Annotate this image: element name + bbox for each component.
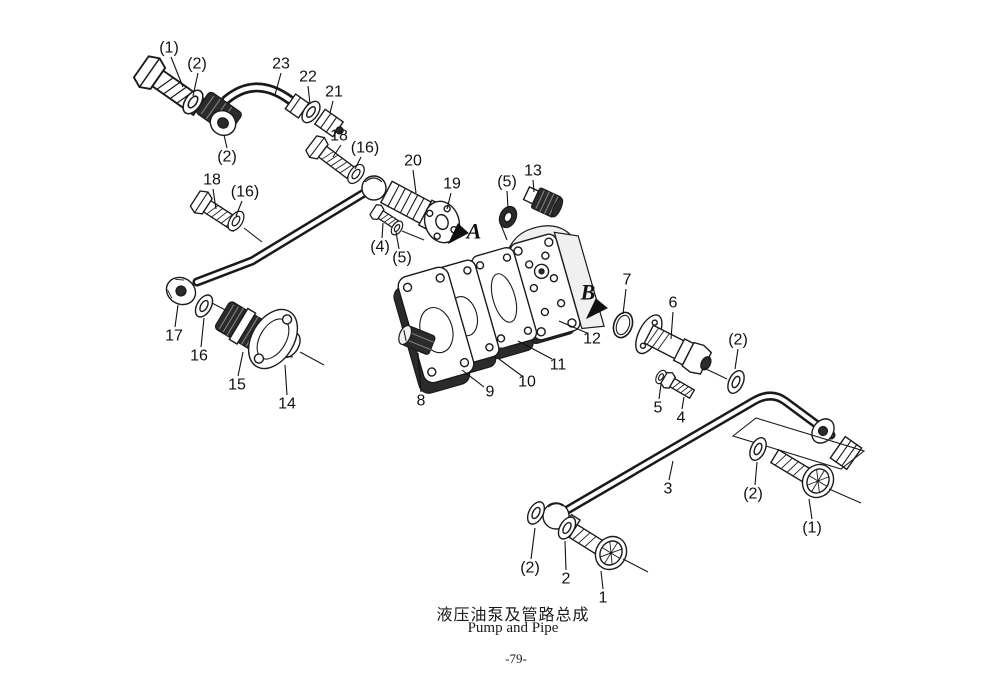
- diagram-title-english: Pump and Pipe: [468, 620, 559, 637]
- callout-label-27: (2): [743, 486, 763, 503]
- callout-label-34: 15: [228, 377, 246, 394]
- callout-leader-28: [809, 499, 812, 519]
- callout-label-1: (2): [187, 56, 207, 73]
- callout-label-2: 23: [272, 56, 290, 73]
- view-label-A: A: [465, 219, 482, 244]
- callout-label-15: 13: [524, 163, 542, 180]
- parts-diagram-canvas: (1)(2)23222118(16)(2)18(16)2019(4)(5)(5)…: [0, 0, 984, 689]
- callout-label-32: 17: [165, 328, 183, 345]
- banjo-17: [161, 272, 200, 310]
- bolt-pointer-line: [829, 489, 861, 503]
- callout-label-13: (5): [392, 250, 412, 267]
- callout-label-6: (16): [351, 140, 379, 157]
- washer-2-plane: [747, 435, 770, 463]
- callout-leader-7: [224, 135, 227, 148]
- callout-leader-33: [201, 318, 204, 347]
- callout-label-8: 18: [203, 172, 221, 189]
- callout-label-9: (16): [231, 184, 259, 201]
- callout-label-29: (2): [520, 560, 540, 577]
- callout-leader-27: [755, 462, 757, 485]
- callout-leader-3: [308, 86, 310, 104]
- axis-line: [244, 228, 262, 242]
- pipe-elbow: [362, 176, 386, 200]
- callout-leader-14: [507, 191, 508, 208]
- callout-label-18: 10: [518, 374, 536, 391]
- callout-leader-29: [531, 528, 535, 559]
- callout-label-0: (1): [159, 40, 179, 57]
- plug-13: [522, 183, 565, 219]
- callout-leader-24: [659, 384, 661, 399]
- callout-label-35: 14: [278, 396, 296, 413]
- callout-leader-26: [669, 461, 673, 480]
- callout-label-5: 18: [330, 128, 348, 145]
- callout-leader-25: [682, 397, 684, 409]
- callout-leader-12: [382, 223, 383, 238]
- page-number: -79-: [505, 651, 527, 667]
- o-ring-7: [610, 310, 636, 341]
- callout-label-21: 7: [623, 272, 632, 289]
- callout-leader-30: [565, 541, 566, 570]
- callout-label-3: 22: [299, 69, 317, 86]
- upper-hose-assembly: [131, 52, 347, 140]
- bolt-pointer-line: [623, 559, 648, 572]
- callout-label-33: 16: [190, 348, 208, 365]
- callout-label-28: (1): [802, 520, 822, 537]
- callout-leader-10: [413, 170, 416, 193]
- callout-leader-32: [175, 305, 178, 327]
- view-label-B: B: [580, 280, 596, 305]
- callout-leader-35: [285, 365, 287, 395]
- callout-label-12: (4): [370, 239, 390, 256]
- callout-label-4: 21: [325, 84, 343, 101]
- callout-label-25: 4: [677, 410, 686, 427]
- callout-label-24: 5: [654, 400, 663, 417]
- callout-label-23: (2): [728, 332, 748, 349]
- fitting-6-assembly: [610, 310, 747, 402]
- stub-pointer-line: [300, 352, 324, 365]
- callout-leader-31: [601, 571, 603, 589]
- callout-label-19: 11: [550, 357, 567, 374]
- callout-leader-4: [330, 101, 333, 113]
- washer-2-right: [725, 368, 748, 396]
- callout-label-10: 20: [404, 153, 422, 170]
- axis-line: [704, 368, 727, 379]
- callout-leader-34: [238, 352, 243, 376]
- callout-label-22: 6: [669, 295, 678, 312]
- callout-label-31: 1: [599, 590, 608, 607]
- callout-leader-21: [623, 289, 626, 314]
- callout-label-7: (2): [217, 149, 237, 166]
- callout-label-26: 3: [664, 481, 673, 498]
- callout-label-16: 8: [417, 393, 426, 410]
- callout-label-11: 19: [443, 176, 461, 193]
- fitting-6: [630, 311, 719, 384]
- callout-leader-23: [735, 349, 738, 369]
- manual-page: (1)(2)23222118(16)(2)18(16)2019(4)(5)(5)…: [0, 0, 984, 689]
- callout-label-14: (5): [497, 174, 517, 191]
- callout-label-30: 2: [562, 571, 571, 588]
- callout-label-20: 12: [583, 331, 601, 348]
- delivery-pipe-assembly: [524, 396, 864, 575]
- pump-assembly: [389, 226, 604, 396]
- bolt-4-right: [660, 371, 697, 402]
- callout-label-17: 9: [486, 384, 495, 401]
- axis-line: [402, 231, 424, 240]
